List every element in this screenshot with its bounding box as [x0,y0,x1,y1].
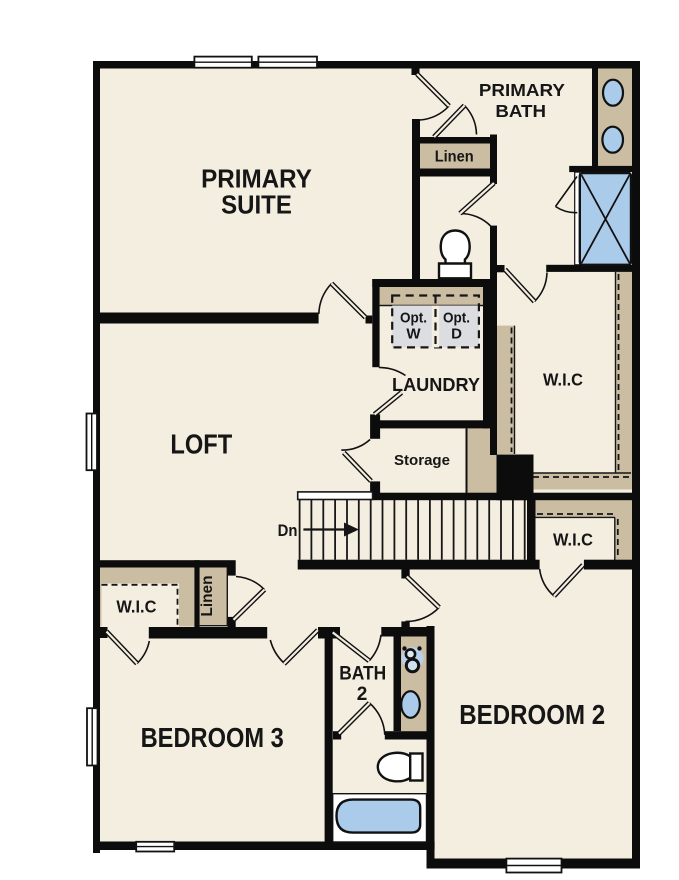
svg-text:LOFT: LOFT [170,429,232,460]
svg-text:LAUNDRY: LAUNDRY [392,375,480,395]
svg-text:SUITE: SUITE [221,190,292,220]
svg-text:W: W [406,326,421,343]
svg-text:Storage: Storage [394,453,450,469]
svg-text:W.I.C: W.I.C [543,370,583,390]
svg-text:2: 2 [357,684,368,705]
svg-text:BEDROOM 3: BEDROOM 3 [141,722,284,753]
svg-text:Linen: Linen [435,149,474,166]
svg-text:PRIMARY: PRIMARY [479,80,565,100]
svg-text:W.I.C: W.I.C [116,596,156,616]
svg-text:Opt.: Opt. [443,310,470,327]
svg-text:BATH: BATH [495,101,546,121]
svg-text:BEDROOM 2: BEDROOM 2 [459,699,605,730]
svg-text:W.I.C: W.I.C [553,530,593,550]
svg-text:BATH: BATH [339,663,386,684]
svg-text:D: D [451,326,462,343]
svg-text:Dn: Dn [278,522,298,540]
svg-text:Linen: Linen [199,576,216,617]
svg-text:Opt.: Opt. [400,310,427,327]
